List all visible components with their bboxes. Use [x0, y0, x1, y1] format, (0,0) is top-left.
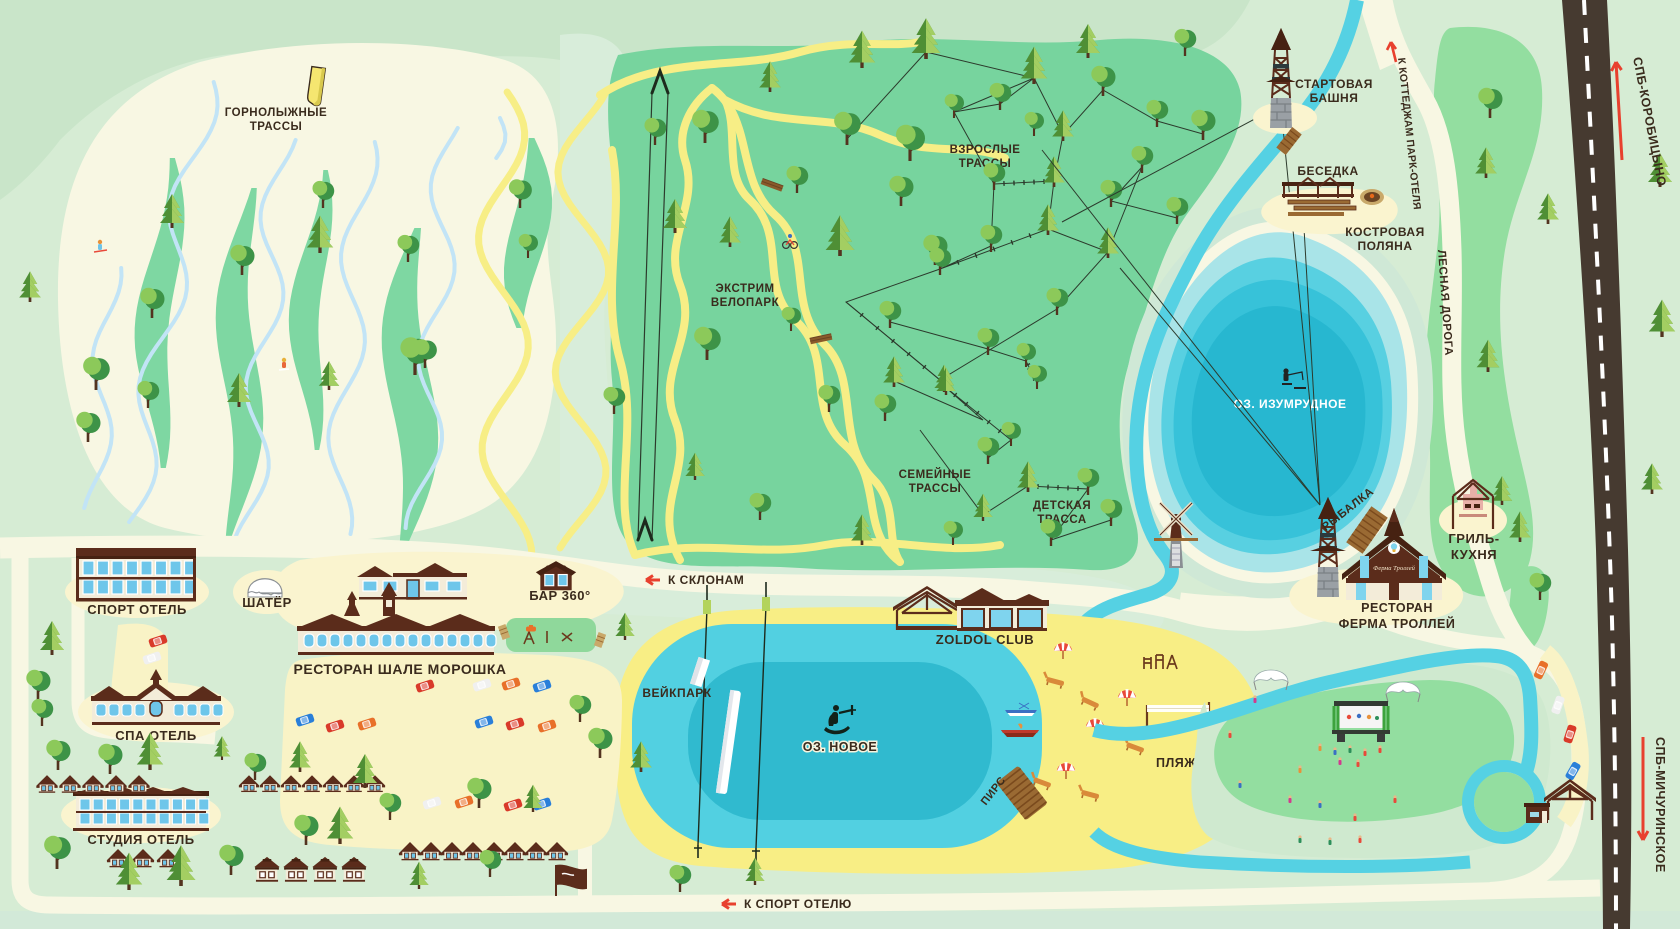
svg-text:ГРИЛЬ-: ГРИЛЬ-: [1448, 531, 1499, 546]
svg-text:ВЗРОСЛЫЕ: ВЗРОСЛЫЕ: [950, 144, 1021, 156]
svg-text:РЕСТОРАН ШАЛЕ МОРОШКА: РЕСТОРАН ШАЛЕ МОРОШКА: [294, 661, 507, 677]
svg-text:К СПОРТ ОТЕЛЮ: К СПОРТ ОТЕЛЮ: [744, 897, 852, 911]
svg-text:РЕСТОРАН: РЕСТОРАН: [1361, 601, 1433, 615]
svg-text:ВЕЙКПАРК: ВЕЙКПАРК: [642, 685, 711, 700]
svg-text:Ферма Троллей: Ферма Троллей: [1373, 565, 1416, 572]
svg-text:ПЛЯЖ: ПЛЯЖ: [1156, 756, 1196, 770]
svg-text:ОЗ. ИЗУМРУДНОЕ: ОЗ. ИЗУМРУДНОЕ: [1234, 397, 1347, 411]
svg-text:КУХНЯ: КУХНЯ: [1451, 547, 1497, 562]
svg-text:ТРАССЫ: ТРАССЫ: [250, 121, 303, 133]
svg-text:КОСТРОВАЯ: КОСТРОВАЯ: [1345, 225, 1424, 239]
svg-text:ОЗ. НОВОЕ: ОЗ. НОВОЕ: [803, 740, 878, 754]
svg-text:СТУДИЯ ОТЕЛЬ: СТУДИЯ ОТЕЛЬ: [87, 832, 194, 847]
svg-text:БЕСЕДКА: БЕСЕДКА: [1297, 164, 1358, 178]
svg-text:ДЕТСКАЯ: ДЕТСКАЯ: [1033, 500, 1091, 512]
svg-text:БАР 360°: БАР 360°: [529, 588, 590, 603]
svg-text:ZOLDOL CLUB: ZOLDOL CLUB: [936, 632, 1034, 647]
svg-text:ШАТЁР: ШАТЁР: [242, 595, 292, 610]
svg-text:ВЕЛОПАРК: ВЕЛОПАРК: [711, 297, 780, 309]
svg-text:СЕМЕЙНЫЕ: СЕМЕЙНЫЕ: [899, 468, 972, 481]
svg-text:СТАРТОВАЯ: СТАРТОВАЯ: [1295, 77, 1373, 91]
svg-text:СПБ-МИЧУРИНСКОЕ: СПБ-МИЧУРИНСКОЕ: [1653, 737, 1667, 873]
svg-text:ТРАССЫ: ТРАССЫ: [909, 483, 962, 495]
svg-text:К СКЛОНАМ: К СКЛОНАМ: [668, 573, 744, 587]
svg-text:БАШНЯ: БАШНЯ: [1310, 91, 1359, 105]
svg-text:СПОРТ ОТЕЛЬ: СПОРТ ОТЕЛЬ: [87, 602, 187, 617]
svg-text:ФЕРМА ТРОЛЛЕЙ: ФЕРМА ТРОЛЛЕЙ: [1339, 616, 1456, 631]
svg-text:ПОЛЯНА: ПОЛЯНА: [1357, 239, 1412, 253]
svg-text:СПА ОТЕЛЬ: СПА ОТЕЛЬ: [115, 728, 196, 743]
svg-text:ЭКСТРИМ: ЭКСТРИМ: [715, 283, 774, 295]
svg-text:ГОРНОЛЫЖНЫЕ: ГОРНОЛЫЖНЫЕ: [225, 107, 327, 119]
